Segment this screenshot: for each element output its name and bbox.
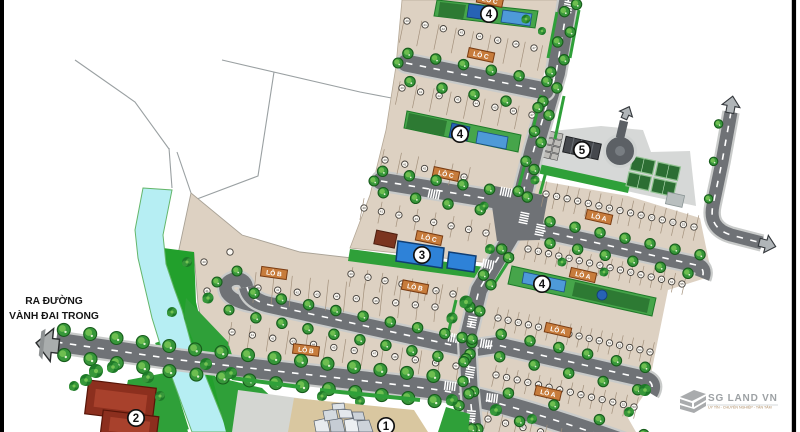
svg-text:42: 42 bbox=[437, 94, 441, 98]
svg-text:50: 50 bbox=[601, 398, 605, 402]
svg-text:4: 4 bbox=[539, 279, 546, 291]
svg-text:46: 46 bbox=[451, 292, 455, 296]
svg-text:45: 45 bbox=[493, 105, 497, 109]
svg-text:52: 52 bbox=[671, 220, 675, 224]
svg-text:46: 46 bbox=[608, 206, 612, 210]
svg-text:50: 50 bbox=[650, 216, 654, 220]
svg-text:51: 51 bbox=[608, 341, 612, 345]
svg-text:43: 43 bbox=[527, 323, 531, 327]
svg-text:42: 42 bbox=[397, 213, 401, 217]
svg-text:46: 46 bbox=[467, 228, 471, 232]
svg-text:2: 2 bbox=[133, 413, 139, 425]
svg-text:48: 48 bbox=[393, 355, 397, 359]
svg-text:42: 42 bbox=[423, 167, 427, 171]
svg-text:48: 48 bbox=[579, 393, 583, 397]
svg-text:42: 42 bbox=[516, 378, 520, 382]
svg-text:40: 40 bbox=[486, 417, 490, 421]
svg-text:40: 40 bbox=[362, 206, 366, 210]
svg-text:51: 51 bbox=[611, 400, 615, 404]
svg-text:47: 47 bbox=[618, 209, 622, 213]
svg-text:42: 42 bbox=[565, 197, 569, 201]
svg-text:5: 5 bbox=[579, 145, 586, 157]
svg-text:41: 41 bbox=[505, 376, 509, 380]
svg-text:SG LAND VN: SG LAND VN bbox=[708, 393, 778, 404]
svg-text:51: 51 bbox=[661, 218, 665, 222]
svg-text:53: 53 bbox=[628, 346, 632, 350]
svg-text:47: 47 bbox=[394, 301, 398, 305]
svg-text:40: 40 bbox=[230, 330, 234, 334]
svg-text:42: 42 bbox=[517, 321, 521, 325]
svg-text:47: 47 bbox=[484, 231, 488, 235]
svg-text:47: 47 bbox=[598, 263, 602, 267]
svg-text:VÀNH ĐAI TRONG: VÀNH ĐAI TRONG bbox=[9, 309, 99, 322]
svg-text:42: 42 bbox=[383, 279, 387, 283]
svg-text:40: 40 bbox=[494, 373, 498, 377]
svg-text:49: 49 bbox=[590, 395, 594, 399]
svg-text:41: 41 bbox=[366, 275, 370, 279]
svg-text:43: 43 bbox=[415, 217, 419, 221]
svg-text:41: 41 bbox=[555, 195, 559, 199]
svg-text:47: 47 bbox=[530, 113, 534, 117]
svg-text:40: 40 bbox=[526, 247, 530, 251]
svg-text:54: 54 bbox=[670, 280, 674, 284]
svg-text:42: 42 bbox=[271, 336, 275, 340]
svg-text:44: 44 bbox=[587, 202, 591, 206]
svg-text:52: 52 bbox=[618, 343, 622, 347]
svg-text:41: 41 bbox=[251, 333, 255, 337]
svg-text:52: 52 bbox=[622, 403, 626, 407]
svg-text:49: 49 bbox=[414, 358, 418, 362]
svg-text:43: 43 bbox=[576, 199, 580, 203]
svg-text:55: 55 bbox=[680, 282, 684, 286]
svg-text:43: 43 bbox=[557, 254, 561, 258]
svg-text:43: 43 bbox=[456, 98, 460, 102]
svg-text:51: 51 bbox=[639, 273, 643, 277]
svg-text:47: 47 bbox=[532, 46, 536, 50]
svg-text:41: 41 bbox=[504, 421, 508, 425]
svg-text:45: 45 bbox=[578, 259, 582, 263]
svg-text:45: 45 bbox=[355, 297, 359, 301]
svg-text:48: 48 bbox=[629, 211, 633, 215]
svg-text:UY TÍN - CHUYÊN NGHIỆP - TẬN T: UY TÍN - CHUYÊN NGHIỆP - TẬN TÂM bbox=[708, 405, 772, 410]
svg-text:43: 43 bbox=[291, 339, 295, 343]
svg-text:53: 53 bbox=[632, 405, 636, 409]
svg-text:48: 48 bbox=[414, 303, 418, 307]
svg-text:51: 51 bbox=[454, 364, 458, 368]
svg-text:46: 46 bbox=[588, 261, 592, 265]
svg-text:40: 40 bbox=[496, 316, 500, 320]
svg-text:47: 47 bbox=[569, 390, 573, 394]
svg-text:42: 42 bbox=[547, 252, 551, 256]
svg-text:44: 44 bbox=[537, 325, 541, 329]
svg-text:45: 45 bbox=[496, 38, 500, 42]
svg-text:49: 49 bbox=[619, 268, 623, 272]
svg-text:49: 49 bbox=[433, 305, 437, 309]
svg-text:44: 44 bbox=[432, 220, 436, 224]
svg-text:1: 1 bbox=[383, 421, 390, 432]
svg-text:43: 43 bbox=[315, 292, 319, 296]
svg-text:46: 46 bbox=[512, 109, 516, 113]
svg-text:41: 41 bbox=[276, 288, 280, 292]
svg-text:47: 47 bbox=[373, 352, 377, 356]
svg-text:41: 41 bbox=[419, 90, 423, 94]
svg-text:4: 4 bbox=[457, 129, 464, 141]
svg-text:40: 40 bbox=[349, 272, 353, 276]
svg-text:40: 40 bbox=[202, 260, 206, 264]
svg-text:41: 41 bbox=[205, 289, 209, 293]
svg-text:41: 41 bbox=[506, 318, 510, 322]
svg-text:50: 50 bbox=[598, 339, 602, 343]
svg-text:41: 41 bbox=[537, 249, 541, 253]
svg-text:53: 53 bbox=[660, 277, 664, 281]
svg-text:46: 46 bbox=[353, 349, 357, 353]
svg-text:44: 44 bbox=[462, 175, 466, 179]
svg-text:45: 45 bbox=[597, 204, 601, 208]
svg-text:55: 55 bbox=[648, 350, 652, 354]
svg-text:54: 54 bbox=[638, 348, 642, 352]
svg-text:52: 52 bbox=[650, 275, 654, 279]
svg-text:45: 45 bbox=[449, 224, 453, 228]
svg-text:43: 43 bbox=[526, 381, 530, 385]
svg-text:46: 46 bbox=[514, 42, 518, 46]
svg-text:41: 41 bbox=[403, 162, 407, 166]
svg-text:RA ĐƯỜNG: RA ĐƯỜNG bbox=[25, 294, 83, 307]
svg-text:44: 44 bbox=[567, 256, 571, 260]
svg-text:44: 44 bbox=[335, 295, 339, 299]
svg-text:49: 49 bbox=[639, 213, 643, 217]
svg-text:4: 4 bbox=[486, 9, 493, 21]
svg-text:48: 48 bbox=[577, 334, 581, 338]
svg-text:45: 45 bbox=[332, 346, 336, 350]
svg-text:40: 40 bbox=[383, 158, 387, 162]
svg-text:3: 3 bbox=[419, 250, 425, 262]
svg-text:44: 44 bbox=[478, 35, 482, 39]
svg-text:42: 42 bbox=[296, 290, 300, 294]
svg-text:40: 40 bbox=[544, 192, 548, 196]
svg-text:40: 40 bbox=[405, 19, 409, 23]
svg-text:40: 40 bbox=[400, 86, 404, 90]
svg-text:43: 43 bbox=[460, 31, 464, 35]
svg-text:49: 49 bbox=[588, 337, 592, 341]
svg-text:41: 41 bbox=[423, 23, 427, 27]
svg-text:46: 46 bbox=[374, 299, 378, 303]
svg-text:41: 41 bbox=[380, 210, 384, 214]
svg-text:48: 48 bbox=[608, 266, 612, 270]
svg-text:42: 42 bbox=[442, 27, 446, 31]
svg-text:44: 44 bbox=[475, 102, 479, 106]
svg-text:53: 53 bbox=[682, 223, 686, 227]
svg-text:45: 45 bbox=[434, 289, 438, 293]
svg-text:50: 50 bbox=[629, 270, 633, 274]
svg-text:54: 54 bbox=[692, 225, 696, 229]
